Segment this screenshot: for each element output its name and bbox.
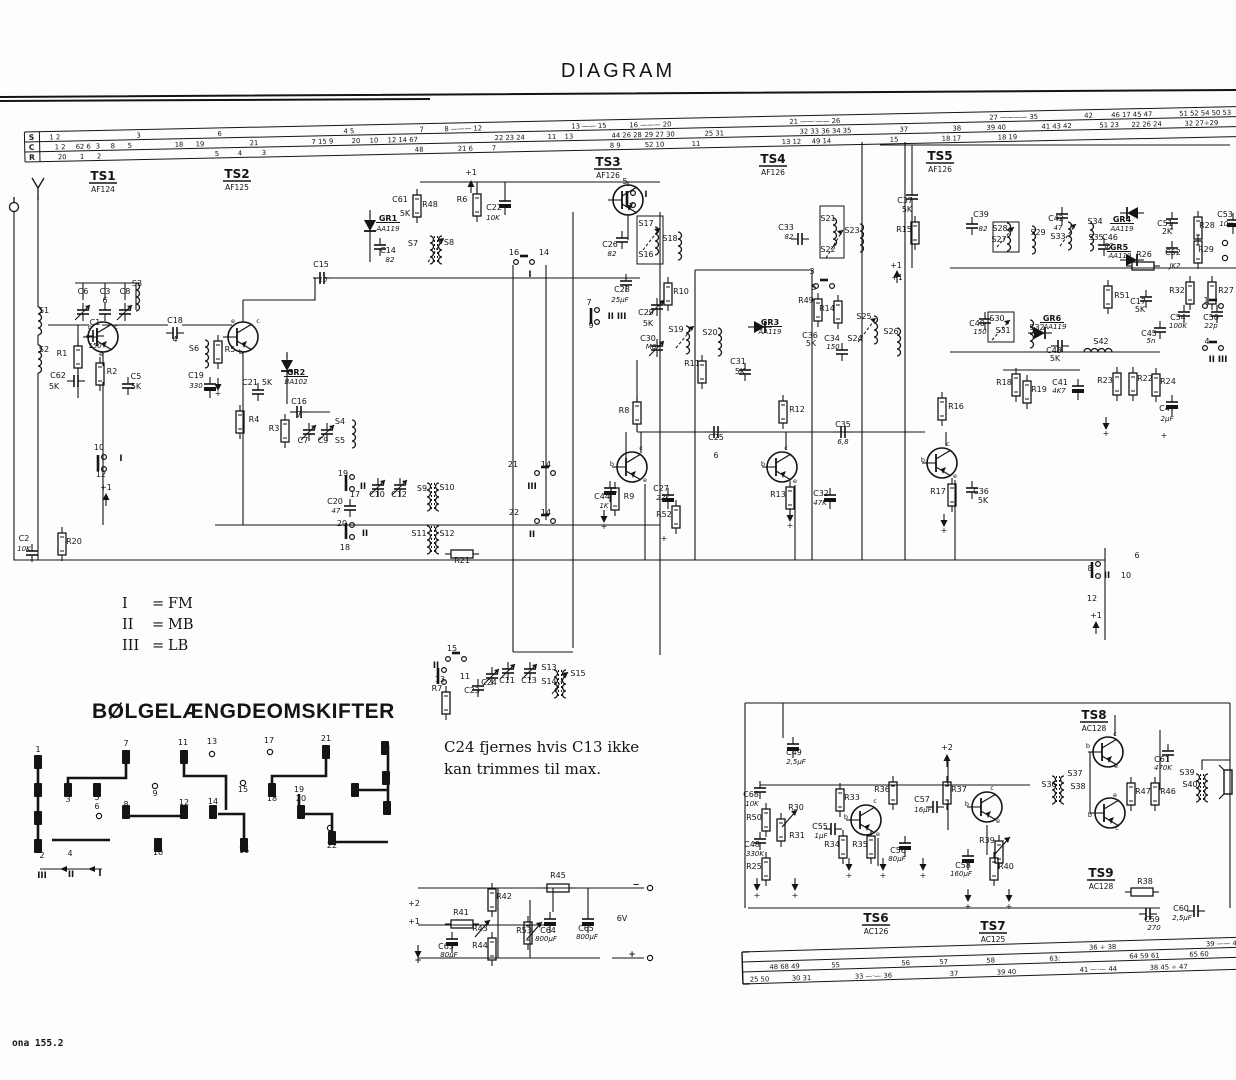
component-label: +1 xyxy=(465,168,477,177)
transistor-collector xyxy=(936,450,951,459)
coil-winding xyxy=(1205,774,1208,802)
coil-winding xyxy=(718,328,722,356)
component-label: 1K xyxy=(599,502,609,510)
component-label: R4 xyxy=(249,415,260,424)
bus-number: 16 ——— 20 xyxy=(629,120,671,129)
component-label: R32 xyxy=(1169,286,1185,295)
band-indicator-label: II xyxy=(1104,571,1110,581)
schematic-canvas: S1S2C1150R1R2C55KC625KC6C36C8S3C210KR201… xyxy=(0,0,1236,1080)
contact-circle xyxy=(1219,346,1224,351)
arrowhead-icon xyxy=(88,866,95,872)
component-label: 270 xyxy=(1147,924,1161,932)
dashed-arrowhead xyxy=(1004,320,1010,325)
bus-number: 7 15 9 xyxy=(312,138,334,146)
component-label: + xyxy=(1103,429,1110,438)
resistor-body xyxy=(1104,286,1112,308)
coil-symbol xyxy=(352,420,356,448)
bus-number: 7 xyxy=(419,126,423,134)
resistor-symbol xyxy=(1104,280,1112,314)
component-label: 6 xyxy=(94,802,99,811)
bus-number: 51 52 54 50 53 xyxy=(1179,109,1231,118)
pin-letter-label: c xyxy=(873,797,877,805)
component-label: +1 xyxy=(1090,611,1102,620)
component-label: JK2 xyxy=(1167,262,1181,270)
switch-pad xyxy=(64,783,72,797)
component-label: R33 xyxy=(844,793,860,802)
component-label: R12 xyxy=(789,405,805,414)
coil-winding xyxy=(352,420,356,448)
component-label: S23 xyxy=(844,226,859,235)
supply-arrow-symbol xyxy=(754,878,761,891)
transistor-collector xyxy=(860,807,875,816)
contact-circle xyxy=(350,475,355,480)
coil-winding xyxy=(1196,774,1200,802)
diode-symbol xyxy=(364,214,376,238)
component-label: C21 xyxy=(242,378,258,387)
contact-circle xyxy=(102,455,107,460)
component-label: S30 xyxy=(989,314,1004,323)
resistor-body xyxy=(779,401,787,423)
component-label: 1μF xyxy=(815,832,829,840)
component-label: 14 xyxy=(208,797,218,806)
component-label: S5 xyxy=(335,436,345,445)
coil-winding xyxy=(205,340,209,368)
component-label: 82 xyxy=(785,233,794,241)
component-label: + xyxy=(601,522,608,531)
switch-contact-symbol xyxy=(627,191,635,208)
switch-pad xyxy=(240,838,248,852)
component-label: 11 xyxy=(460,672,470,681)
component-label: C16 xyxy=(291,397,307,406)
component-label: R51 xyxy=(1114,291,1130,300)
band-indicator-label: II xyxy=(68,870,74,880)
coil-winding xyxy=(427,483,431,511)
resistor-body xyxy=(1113,373,1121,395)
switch-contact-symbol xyxy=(591,308,599,325)
component-label: 16 xyxy=(509,248,519,257)
resistor-body xyxy=(1131,888,1153,896)
component-label: 100K xyxy=(1169,322,1188,330)
component-label: S42 xyxy=(1093,337,1108,346)
bottom-connection-bus: 36 ÷ 3839 —— 4148 68 495556575863:64 59 … xyxy=(742,937,1236,984)
stage-type-label: AC128 xyxy=(1082,724,1107,733)
resistor-symbol xyxy=(672,500,680,534)
component-label: 47 xyxy=(1054,224,1063,232)
component-label: C26 xyxy=(602,240,618,249)
component-label: +1 xyxy=(100,483,112,492)
component-label: 800μF xyxy=(576,933,599,941)
component-label: C6 xyxy=(78,287,89,296)
component-label: R19 xyxy=(1031,385,1047,394)
bus-number: 38 45 ÷ 47 xyxy=(1150,963,1188,972)
stage-type-label: AF125 xyxy=(225,183,249,192)
component-label: + xyxy=(754,891,761,900)
component-label: S12 xyxy=(439,529,454,538)
wire xyxy=(14,142,1236,958)
component-label: + xyxy=(787,521,794,530)
bus-line xyxy=(742,952,743,984)
component-label: 330K xyxy=(746,850,765,858)
switch-pad xyxy=(180,805,188,819)
component-label: 10 xyxy=(1121,571,1131,580)
supply-arrowhead xyxy=(965,895,972,902)
component-label: 10K xyxy=(745,800,760,808)
component-label: R44 xyxy=(472,941,488,950)
component-label: C34 xyxy=(824,334,840,343)
supply-arrowhead xyxy=(880,864,887,871)
bus-number: 1 xyxy=(80,153,84,161)
resistor-symbol xyxy=(943,776,951,810)
component-label: R38 xyxy=(1137,877,1153,886)
resistor-symbol xyxy=(762,803,770,837)
capacitor-plate xyxy=(787,747,799,751)
switch-pad xyxy=(122,805,130,819)
contact-circle xyxy=(595,308,600,313)
capacitor-plate xyxy=(582,922,594,926)
coil-winding xyxy=(427,526,431,554)
resistor-body xyxy=(1012,374,1020,396)
resistor-symbol xyxy=(779,395,787,429)
trimmer-capacitor-symbol xyxy=(649,298,664,316)
resistor-symbol xyxy=(473,188,481,222)
component-label: C25 xyxy=(708,433,724,442)
component-label: R22 xyxy=(1137,374,1153,383)
component-label: S33 xyxy=(1050,232,1065,241)
transistor-symbol xyxy=(1088,737,1123,767)
pin-letter-label: c xyxy=(639,444,643,452)
component-label: C57 xyxy=(914,795,930,804)
coil-winding xyxy=(554,670,558,698)
switch-pad xyxy=(34,755,42,769)
pin-letter-label: c xyxy=(784,444,788,452)
bus-number: 19 xyxy=(196,140,205,148)
component-label: 800μF xyxy=(535,935,558,943)
trimmer-capacitor-symbol xyxy=(301,423,316,441)
component-label: 5K xyxy=(400,209,411,218)
resistor-body xyxy=(990,858,998,880)
component-label: 3 xyxy=(809,267,814,276)
bus-number: 55 xyxy=(831,961,840,969)
component-label: 5K xyxy=(262,378,273,387)
supply-arrowhead xyxy=(920,864,927,871)
bus-number: 32 33 36 34 35 xyxy=(799,127,851,136)
component-label: +2 xyxy=(408,899,420,908)
contact-circle xyxy=(350,535,355,540)
switch-pad xyxy=(351,783,359,797)
component-label: C39 xyxy=(973,210,989,219)
resistor-symbol xyxy=(74,340,82,374)
component-label: 2,5μF xyxy=(786,758,807,766)
coil-symbol xyxy=(678,232,682,260)
component-label: C3 xyxy=(100,287,111,296)
component-label: R6 xyxy=(457,195,468,204)
component-label: R31 xyxy=(789,831,805,840)
resistor-symbol xyxy=(990,852,998,886)
bus-number: 41 43 42 xyxy=(1041,122,1071,131)
electrolytic-capacitor-symbol xyxy=(1072,379,1084,400)
component-label: S20 xyxy=(702,328,717,337)
resistor-body xyxy=(488,938,496,960)
component-label: R17 xyxy=(930,487,946,496)
component-label: 9 xyxy=(152,789,157,798)
bus-line xyxy=(25,136,1236,162)
component-label: S28 xyxy=(992,224,1007,233)
bus-number: 21 xyxy=(250,139,259,147)
switch-pad xyxy=(34,783,42,797)
transistor-symbol xyxy=(967,792,1002,822)
pin-letter-label: c xyxy=(990,784,994,792)
resistor-symbol xyxy=(839,830,847,864)
component-label: R13 xyxy=(770,490,786,499)
resistor-body xyxy=(777,819,785,841)
stage-title: TS8 xyxy=(1081,708,1106,722)
transistor-collector xyxy=(626,454,641,463)
component-label: 15 xyxy=(238,785,248,794)
component-label: S19 xyxy=(668,325,683,334)
resistor-symbol xyxy=(281,414,289,448)
supply-arrowhead xyxy=(754,884,761,891)
contact-circle xyxy=(1203,346,1208,351)
stage-type-label: AC128 xyxy=(1089,882,1114,891)
supply-arrowhead xyxy=(1006,895,1013,902)
component-label: R10 xyxy=(673,287,689,296)
resistor-body xyxy=(1023,381,1031,403)
contact-circle xyxy=(551,519,556,524)
band-indicator-label: II xyxy=(362,529,368,539)
bus-number: 10 xyxy=(370,137,379,145)
stage-title: TS2 xyxy=(224,167,249,181)
transistor-collector xyxy=(981,794,996,803)
diode-label: GR4 xyxy=(1113,215,1132,224)
switch-pad xyxy=(122,750,130,764)
resistor-symbol xyxy=(413,189,421,223)
stage-title: TS4 xyxy=(760,152,785,166)
bus-number: 41 —·— 44 xyxy=(1080,965,1118,974)
band-indicator-label: − xyxy=(632,880,639,890)
component-label: C33 xyxy=(778,223,794,232)
title-rule xyxy=(0,90,1236,101)
component-label: + xyxy=(661,534,668,543)
component-label: 19 xyxy=(294,785,304,794)
bus-number: 58 xyxy=(986,957,995,965)
bus-number: 13 xyxy=(565,133,574,141)
component-label: 10K xyxy=(486,214,501,222)
component-label: S11 xyxy=(411,529,426,538)
antenna-icon xyxy=(32,178,44,200)
component-label: R1 xyxy=(57,349,68,358)
transistor-collector xyxy=(776,454,791,463)
transformer-symbol xyxy=(427,483,439,511)
terminal-circle xyxy=(209,751,214,756)
transistor-symbol xyxy=(846,805,881,835)
bus-number: 27 ———— 35 xyxy=(989,113,1038,122)
bottom-bus-bracket xyxy=(742,952,750,984)
supply-arrow-symbol xyxy=(1093,621,1100,634)
resistor-symbol xyxy=(442,686,450,720)
contact-circle xyxy=(595,320,600,325)
component-label: 82 xyxy=(979,225,988,233)
contact-circle xyxy=(631,191,636,196)
resistor-body xyxy=(1186,282,1194,304)
component-label: 21 xyxy=(321,734,331,743)
resistor-body xyxy=(834,301,842,323)
speaker-cone xyxy=(1219,794,1224,799)
component-label: C61 xyxy=(392,195,408,204)
bus-number: 1 2 xyxy=(55,143,66,151)
stage-type-label: AF126 xyxy=(596,171,620,180)
bus-number: 44 26 28 xyxy=(611,131,641,140)
bus-number: 8 xyxy=(111,142,115,150)
resistor-body xyxy=(74,346,82,368)
bus-row-label: C xyxy=(29,143,35,152)
terminal-circle xyxy=(647,885,652,890)
transistor-symbol xyxy=(922,448,957,478)
resistor-body xyxy=(58,533,66,555)
resistor-symbol xyxy=(488,932,496,966)
bus-number: 22 26 24 xyxy=(1131,120,1161,129)
component-label: + xyxy=(965,902,972,911)
terminal-circle xyxy=(267,749,272,754)
bus-number: 11 xyxy=(692,140,701,148)
resistor-symbol xyxy=(1208,276,1216,310)
component-label: + xyxy=(1006,902,1013,911)
component-label: S9 xyxy=(417,484,427,493)
bus-number: 8 9 xyxy=(610,142,621,150)
component-label: C19 xyxy=(188,371,204,380)
pin-letter-label: c xyxy=(256,317,260,325)
bus-number: 6 xyxy=(217,130,221,138)
component-label: R45 xyxy=(550,871,566,880)
component-label: R9 xyxy=(624,492,635,501)
component-label: 6 xyxy=(713,451,718,460)
component-label: 11 xyxy=(178,738,188,747)
bus-number: 15 xyxy=(890,136,899,144)
resistor-symbol xyxy=(889,776,897,810)
terminal-circle xyxy=(1222,255,1227,260)
switch-pad xyxy=(382,771,390,785)
component-label: 22 xyxy=(509,508,519,517)
component-label: S27 xyxy=(991,235,1006,244)
transistor-collector xyxy=(1104,800,1119,809)
resistor-body xyxy=(281,420,289,442)
resistor-symbol xyxy=(1186,276,1194,310)
capacitor-plate xyxy=(499,204,511,208)
component-label: AA119 xyxy=(758,328,782,336)
component-label: 18 xyxy=(340,543,350,552)
stage-title: TS3 xyxy=(595,155,620,169)
resistor-symbol xyxy=(777,813,785,847)
bus-number: 20 xyxy=(58,153,67,161)
resistor-symbol xyxy=(1125,888,1159,896)
bus-number: 39 40 xyxy=(997,968,1017,977)
capacitor-plate xyxy=(446,942,458,946)
coil-winding xyxy=(1068,222,1072,250)
component-label: C12 xyxy=(391,490,407,499)
component-label: + xyxy=(1161,431,1168,440)
component-label: + xyxy=(920,871,927,880)
trimmer-capacitor-symbol xyxy=(75,303,90,321)
resistor-body xyxy=(451,920,473,928)
resistor-symbol xyxy=(58,527,66,561)
resistor-body xyxy=(762,809,770,831)
stage-title: TS9 xyxy=(1088,866,1113,880)
stage-title: TS6 xyxy=(863,911,888,925)
resistor-body xyxy=(1127,783,1135,805)
capacitor-plate xyxy=(204,387,216,391)
bus-row-label: S xyxy=(29,133,35,142)
bus-number: 18 xyxy=(175,141,184,149)
bus-number: 36 ÷ 38 xyxy=(1089,943,1117,952)
antenna-terminal xyxy=(10,203,19,212)
component-label: 25μF xyxy=(611,296,629,304)
capacitor-plate xyxy=(604,491,616,495)
bus-number: 5 xyxy=(215,150,219,158)
resistor-body xyxy=(473,194,481,216)
component-label: 15 xyxy=(447,644,457,653)
bus-number: 4 5 xyxy=(343,127,354,135)
component-label: BA102 xyxy=(285,378,308,386)
resistor-body xyxy=(633,402,641,424)
component-label: R36 xyxy=(874,785,890,794)
component-label: 4 xyxy=(1204,337,1209,346)
resistor-symbol xyxy=(633,396,641,430)
pin-letter-label: c xyxy=(946,440,950,448)
bus-number: 64 59 61 xyxy=(1129,952,1160,961)
component-label: C18 xyxy=(167,316,183,325)
capacitor-plate xyxy=(824,498,836,502)
coil-symbol xyxy=(205,340,209,368)
trimmer-capacitor-symbol xyxy=(319,423,334,441)
component-label: AA119 xyxy=(376,225,400,233)
resistor-symbol xyxy=(834,295,842,329)
component-label: 6 xyxy=(1134,551,1139,560)
component-label: R25 xyxy=(746,862,762,871)
resistor-body xyxy=(836,789,844,811)
component-label: 82 xyxy=(386,256,395,264)
resistor-body xyxy=(1151,783,1159,805)
component-label: +1 xyxy=(890,261,902,270)
supply-arrowhead xyxy=(468,180,475,187)
component-label: S40 xyxy=(1182,780,1197,789)
contact-circle xyxy=(514,260,519,265)
component-label: R20 xyxy=(66,537,82,546)
component-label: 470K xyxy=(1154,764,1173,772)
component-label: 21 xyxy=(508,460,518,469)
switch-contact-symbol xyxy=(98,455,106,472)
component-label: 2,5μF xyxy=(1172,914,1193,922)
supply-arrow-symbol xyxy=(880,858,887,871)
capacitor-symbol xyxy=(344,499,356,517)
bus-number: 52 10 xyxy=(645,141,665,149)
supply-arrow-symbol xyxy=(944,754,951,767)
supply-arrowhead xyxy=(944,754,951,761)
component-label: S18 xyxy=(662,234,677,243)
capacitor-plate xyxy=(544,922,556,926)
contact-circle xyxy=(535,519,540,524)
component-label: S6 xyxy=(189,344,199,353)
component-label: S7 xyxy=(408,239,418,248)
component-label: R48 xyxy=(422,200,438,209)
switch-pad xyxy=(383,801,391,815)
component-label: C14 xyxy=(380,246,396,255)
component-label: 5K xyxy=(978,496,989,505)
component-label: 13 xyxy=(207,737,217,746)
bus-number: 48 xyxy=(415,146,424,154)
capacitor-plate xyxy=(1227,223,1236,227)
capacitor-plate xyxy=(1072,389,1084,393)
transistor-symbol xyxy=(608,185,643,215)
contact-circle xyxy=(446,657,451,662)
